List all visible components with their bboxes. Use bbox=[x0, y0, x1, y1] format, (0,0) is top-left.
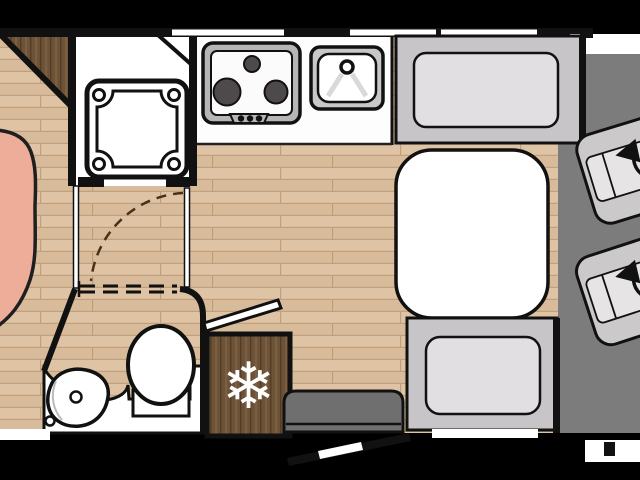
bench-bottom-end-wall bbox=[553, 318, 560, 433]
sink bbox=[311, 47, 383, 109]
shower-right-wall bbox=[189, 33, 197, 186]
table bbox=[396, 150, 548, 318]
washbasin-drain bbox=[71, 392, 82, 403]
wall-stub-left bbox=[78, 177, 104, 187]
burner-small bbox=[244, 56, 260, 72]
burner-medium bbox=[265, 81, 288, 104]
entry-step bbox=[284, 391, 403, 432]
tap-icon bbox=[341, 61, 353, 73]
burner-large bbox=[214, 79, 241, 106]
door-post-right bbox=[185, 188, 190, 287]
wall-stub-right bbox=[166, 177, 190, 187]
dinette-bottom-window bbox=[432, 429, 538, 438]
hob bbox=[203, 43, 300, 123]
floorplan: ❄ bbox=[0, 0, 640, 480]
shower-left-wall bbox=[68, 33, 76, 186]
hob-knob bbox=[247, 115, 253, 121]
bench-bottom-cushion bbox=[426, 337, 540, 414]
bench-end-wall bbox=[579, 36, 586, 143]
toilet-bowl bbox=[128, 326, 194, 404]
shower-room bbox=[76, 33, 197, 187]
kitchen-block bbox=[197, 33, 392, 145]
hob-knob bbox=[238, 115, 244, 121]
counter-dot bbox=[46, 417, 55, 426]
bench-top-cushion bbox=[414, 53, 558, 127]
shower-tray-corner-dot bbox=[169, 90, 180, 101]
shower-tray-corner-dot bbox=[169, 159, 180, 170]
hob-knob bbox=[256, 115, 262, 121]
snowflake-icon: ❄ bbox=[222, 350, 276, 424]
window-left bbox=[172, 30, 284, 36]
rear-bottom-window bbox=[0, 429, 50, 440]
cab-bottom-mark bbox=[604, 442, 615, 456]
shower-tray-corner-dot bbox=[94, 159, 105, 170]
floorplan-canvas: ❄ bbox=[0, 0, 640, 480]
door-post-left bbox=[74, 186, 79, 288]
shower-tray-corner-dot bbox=[94, 90, 105, 101]
